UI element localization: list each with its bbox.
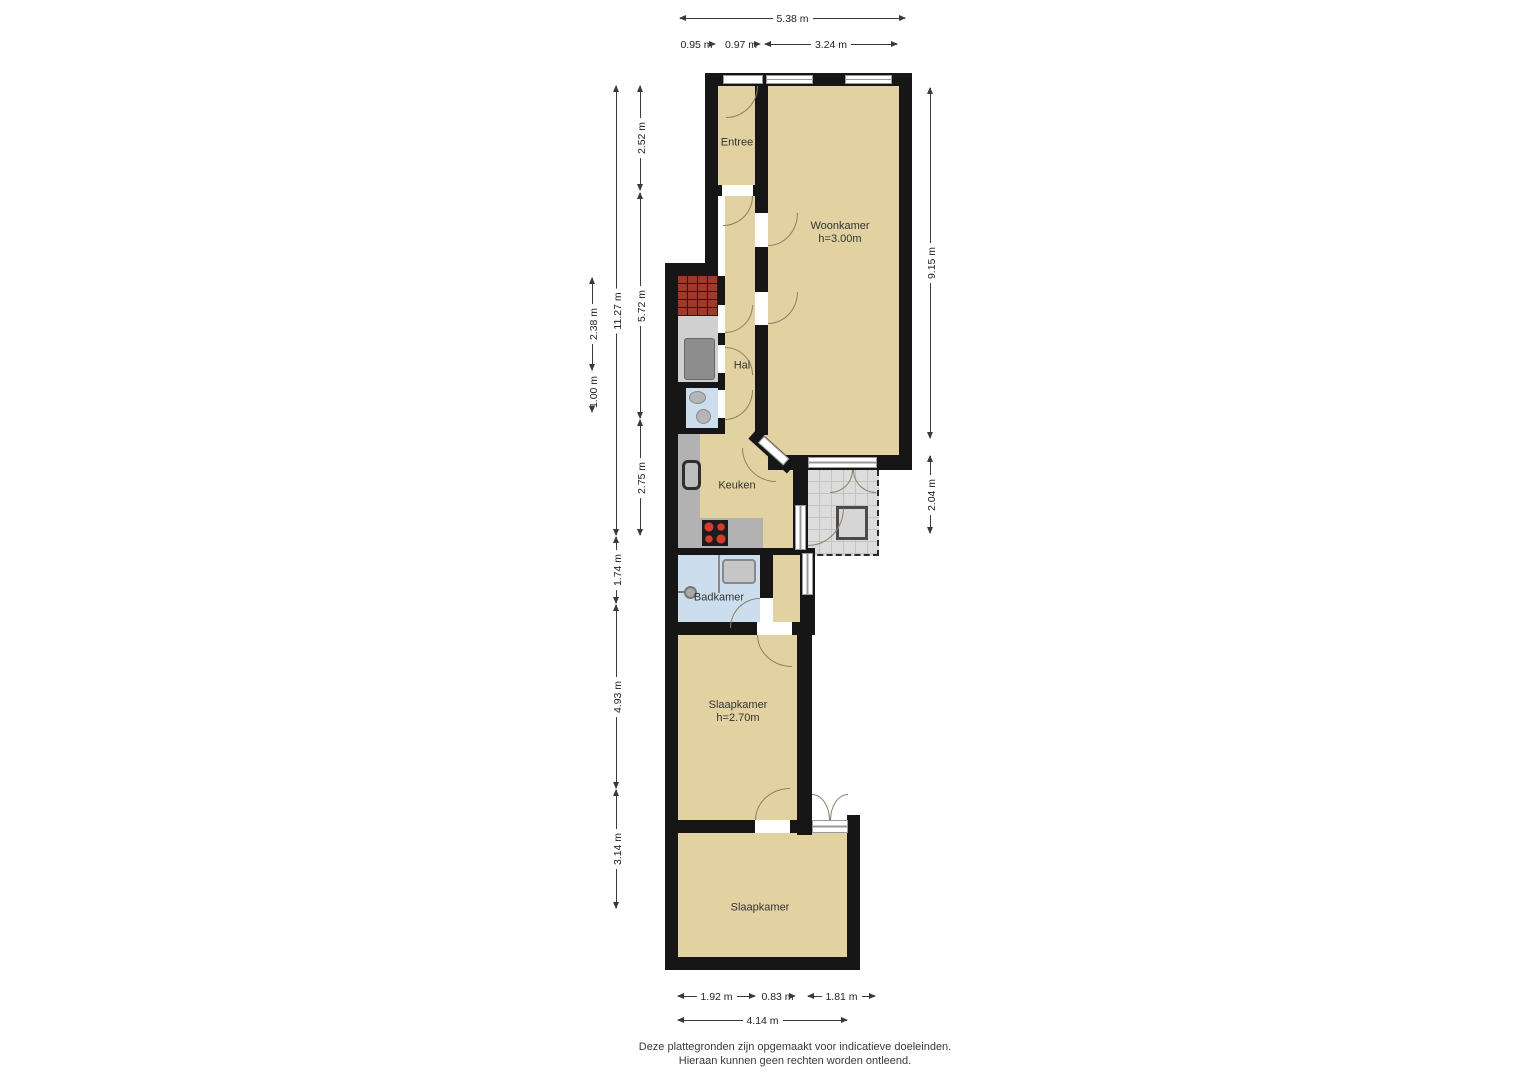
opening-badkamer [760,598,773,628]
dim-left-total: 11.27 m [616,86,617,535]
shower-stem [678,591,686,593]
dim-label: 4.93 m [612,676,624,716]
window-top-2 [845,75,892,84]
dim-left-174: 1.74 m [616,537,617,603]
room-name: Hal [734,360,751,372]
dim-label: 0.97 m [721,39,761,51]
dim-bottom-total: 4.14 m [678,1020,847,1021]
opening-hal-berging [718,305,725,333]
wall-left-upper [705,73,718,276]
opening-entree-hal [722,185,753,196]
dim-label: 2.75 m [636,457,648,497]
dim-left-100: 1.00 m [592,372,593,412]
wall-bottomblock-right [847,815,860,970]
bathroom-sink [722,559,756,584]
room-label-entree: Entree [721,137,753,150]
dim-label: 2.38 m [588,304,600,344]
room-name: Keuken [718,480,755,492]
dim-label: 0.95 m [676,39,716,51]
room-slaapkamer-2 [678,833,847,957]
dim-left-275: 2.75 m [640,420,641,535]
room-name: Woonkamer [810,220,869,233]
dim-label: 1.81 m [821,991,861,1003]
dim-label: 11.27 m [612,288,624,333]
opening-hal-utility [718,345,725,373]
room-ceiling-height: h=2.70m [709,712,768,725]
dim-bottom-seg2: 0.83 m [760,996,795,997]
disclaimer-line-1: Deze plattegronden zijn opgemaakt voor i… [639,1040,952,1054]
dim-right-915: 9.15 m [930,88,931,438]
room-label-badkamer: Badkamer [694,592,744,605]
wall-right [899,73,912,470]
dim-left-572: 5.72 m [640,193,641,418]
room-woonkamer [768,86,899,455]
room-name: Slaapkamer [709,699,768,712]
dim-label: 2.52 m [636,118,648,158]
room-name: Badkamer [694,592,744,604]
opening-slaapkamer2-doors [812,820,848,833]
dim-left-314: 3.14 m [616,790,617,908]
dim-left-252: 2.52 m [640,86,641,190]
dim-top-seg1: 0.95 m [678,44,715,45]
opening-slaapkamer1-bottom [755,820,790,833]
slaapkamer2-french-door-right-swing [830,794,848,820]
dim-label: 1.92 m [696,991,736,1003]
stove [702,520,728,546]
window-corridor [802,553,813,595]
window-keuken-balcony [795,505,806,550]
room-label-keuken: Keuken [718,480,755,493]
dim-label: 3.24 m [811,39,851,51]
opening-hal-woonkamer-1 [755,213,768,247]
dim-label: 3.14 m [612,829,624,869]
kitchen-counter-left [678,434,700,548]
opening-hal-toilet [718,390,725,418]
toilet-seat [696,409,711,424]
wall-keuken-bottom [665,548,795,555]
roof-tiles-area [678,276,718,316]
dim-label: 0.83 m [757,991,797,1003]
bathroom-divider [718,555,720,593]
wall-bottom [665,957,860,970]
window-woonkamer-balcony [808,457,877,468]
dim-bottom-seg3: 1.81 m [808,996,875,997]
wall-hal-woonkamer [755,86,768,435]
floor-plan: Entree Woonkamer h=3.00m Hal Keuken Badk… [0,0,1527,1080]
washing-machine [684,338,715,380]
dim-label: 4.14 m [742,1015,782,1027]
wall-slaapkamer1-right [797,622,812,835]
dim-label: 5.38 m [772,13,812,25]
dim-left-238: 2.38 m [592,278,593,370]
dim-label: 1.74 m [612,550,624,590]
room-name: Slaapkamer [731,902,790,914]
kitchen-sink [682,460,701,490]
room-label-woonkamer: Woonkamer h=3.00m [810,220,869,246]
wall-toilet-left [678,384,686,428]
dim-top-seg2: 0.97 m [722,44,760,45]
room-label-slaapkamer-2: Slaapkamer [731,902,790,915]
window-top-1 [766,75,813,84]
dim-label: 2.04 m [926,474,938,514]
opening-hal-woonkamer-2 [755,292,768,325]
dim-label: 9.15 m [926,243,938,283]
wall-left-main [665,263,678,970]
slaapkamer2-french-door-left-swing [812,794,830,820]
dim-right-204: 2.04 m [930,456,931,533]
toilet-bowl [689,391,706,404]
wall-annex-bottom [665,428,725,434]
dim-top-seg3: 3.24 m [765,44,897,45]
disclaimer-line-2: Hieraan kunnen geen rechten worden ontle… [639,1054,952,1068]
dim-label: 5.72 m [636,285,648,325]
room-ceiling-height: h=3.00m [810,233,869,246]
dim-top-total: 5.38 m [680,18,905,19]
room-name: Entree [721,137,753,149]
room-label-hal: Hal [734,360,751,373]
disclaimer: Deze plattegronden zijn opgemaakt voor i… [639,1040,952,1068]
dim-bottom-seg1: 1.92 m [678,996,755,997]
front-door-opening [723,75,763,84]
dim-left-493: 4.93 m [616,605,617,788]
room-label-slaapkamer-1: Slaapkamer h=2.70m [709,699,768,725]
dim-label: 1.00 m [588,372,600,412]
